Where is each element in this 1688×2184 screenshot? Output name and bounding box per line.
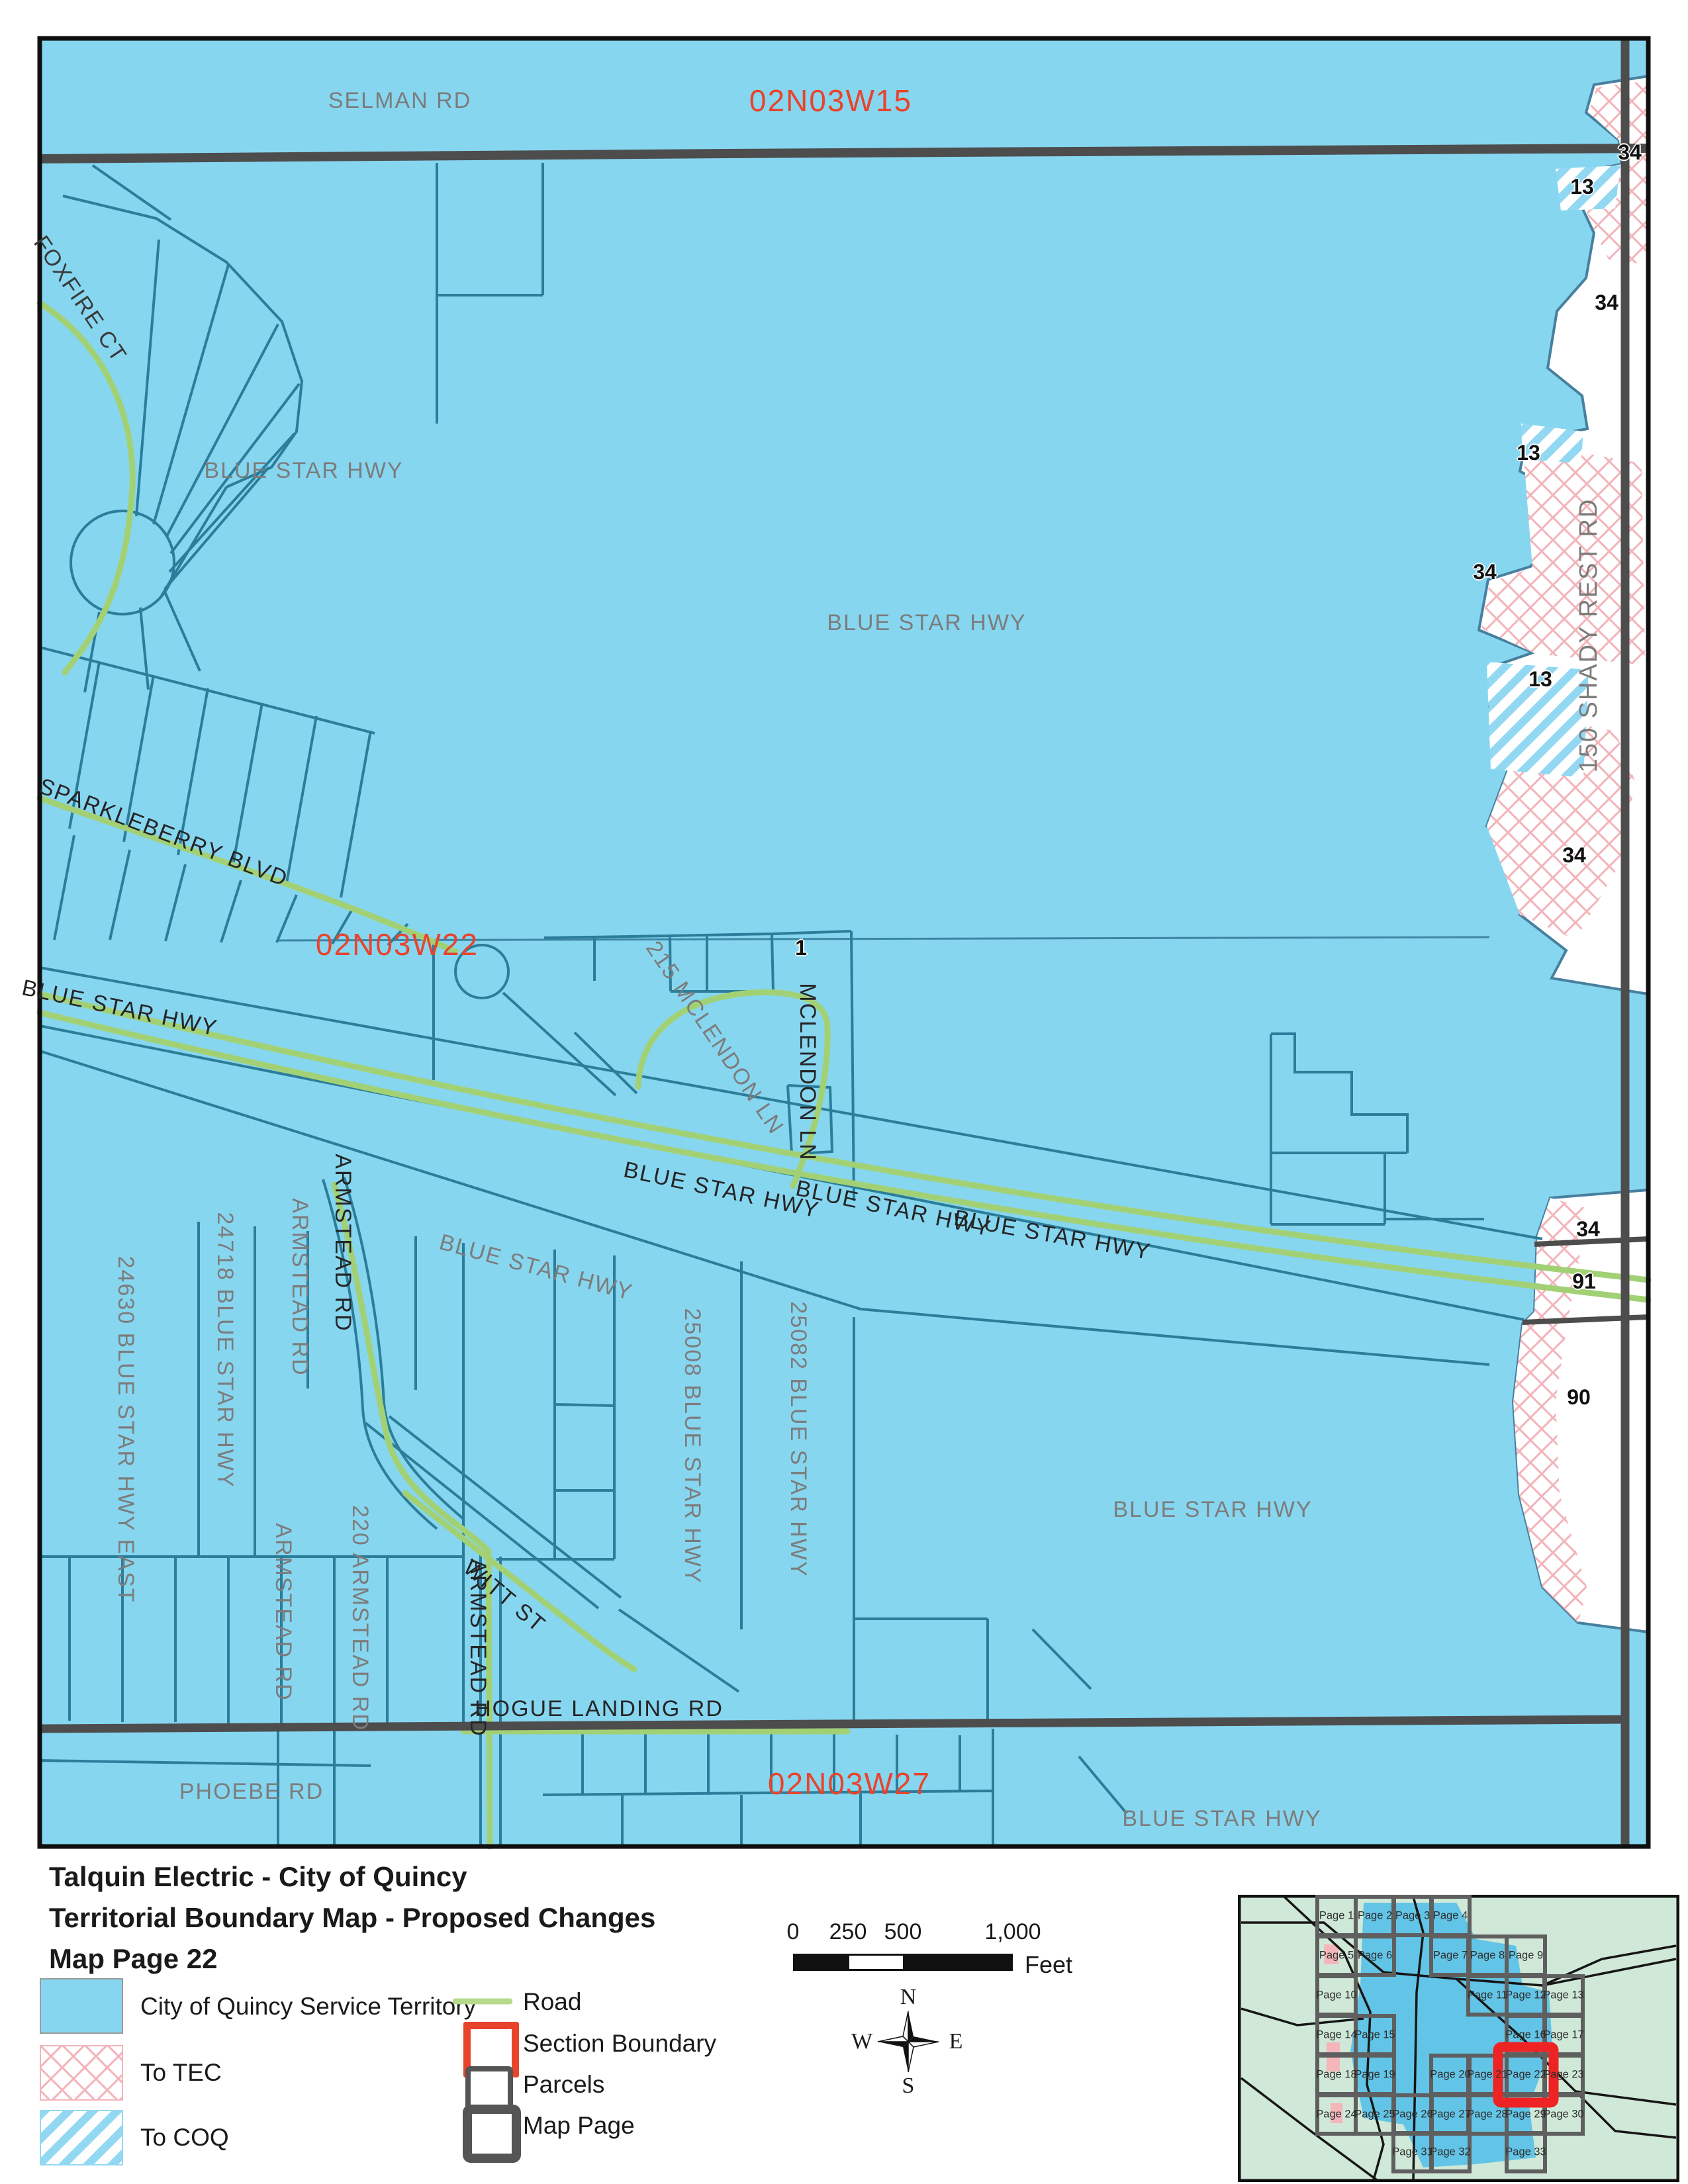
compass-e-label: E <box>949 2029 963 2054</box>
road-label-150-shady-rest-rd: 150 SHADY REST RD <box>1576 498 1601 773</box>
inset-page-label: Page 9 <box>1509 1950 1543 1962</box>
scale-bar <box>793 1954 1013 1971</box>
parcel-number: 1 <box>795 937 807 958</box>
inset-page-label: Page 18 <box>1316 2069 1356 2081</box>
inset-page-label: Page 23 <box>1543 2069 1583 2081</box>
inset-page-label: Page 14 <box>1316 2029 1356 2042</box>
map-title-line1: Talquin Electric - City of Quincy <box>49 1861 655 1893</box>
scale-bar-segment <box>795 1956 849 1969</box>
inset-page-label: Page 30 <box>1543 2109 1583 2121</box>
legend-swatch-tec <box>40 2045 123 2101</box>
legend-label-section-boundary: Section Boundary <box>523 2030 716 2058</box>
parcel-number: 34 <box>1562 844 1586 866</box>
legend-label-tec: To TEC <box>140 2059 222 2087</box>
inset-page-label: Page 28 <box>1467 2109 1507 2121</box>
legend-swatch-territory <box>40 1978 123 2034</box>
compass-n-label: N <box>900 1985 917 2010</box>
inset-page-label: Page 5 <box>1319 1950 1354 1962</box>
legend-label-road: Road <box>523 1988 581 2016</box>
addr-label-25082: 25082 BLUE STAR HWY <box>787 1301 810 1577</box>
parcel-number: 91 <box>1572 1271 1596 1292</box>
legend-label-coq: To COQ <box>140 2124 229 2152</box>
map-title-line2: Territorial Boundary Map - Proposed Chan… <box>49 1902 655 1934</box>
road-label-armstead-gray-1: ARMSTEAD RD <box>289 1198 311 1376</box>
legend-label-parcels: Parcels <box>523 2071 604 2099</box>
scale-bar-segment <box>903 1956 1011 1969</box>
parcel-number: 34 <box>1618 142 1642 163</box>
compass-w-label: W <box>851 2029 872 2054</box>
map-page: SELMAN RD 02N03W15 FOXFIRE CT BLUE STAR … <box>0 0 1688 2184</box>
scale-tick-0: 0 <box>787 1919 800 1945</box>
road-label-armstead-black-top: ARMSTEAD RD <box>332 1154 354 1332</box>
parcel-number: 34 <box>1576 1218 1600 1240</box>
map-title-line3: Map Page 22 <box>49 1943 655 1975</box>
road-label-hogue-landing-rd: HOGUE LANDING RD <box>475 1698 724 1720</box>
scale-unit-label: Feet <box>1025 1951 1072 1979</box>
road-label-phoebe-rd: PHOEBE RD <box>179 1780 324 1803</box>
addr-label-220-armstead: 220 ARMSTEAD RD <box>349 1505 371 1731</box>
inset-page-label: Page 11 <box>1468 1989 1507 2002</box>
inset-page-label: Page 25 <box>1354 2109 1395 2121</box>
section-label-02n03w15: 02N03W15 <box>749 85 912 116</box>
inset-page-label: Page 3 <box>1395 1910 1430 1923</box>
inset-page-label: Page 27 <box>1430 2109 1470 2121</box>
legend-swatch-coq <box>40 2110 123 2165</box>
road-label-selman-rd: SELMAN RD <box>328 89 471 112</box>
legend-label-map-page: Map Page <box>523 2112 635 2140</box>
inset-page-label: Page 6 <box>1358 1950 1392 1962</box>
title-block: Talquin Electric - City of Quincy Territ… <box>49 1861 655 1984</box>
compass-s-label: S <box>902 2073 915 2099</box>
inset-page-label: Page 20 <box>1430 2069 1470 2081</box>
scale-tick-250: 250 <box>829 1919 867 1945</box>
inset-page-label: Page 22 <box>1505 2069 1546 2081</box>
road-label-armstead-gray-2: ARMSTEAD RD <box>272 1523 295 1701</box>
inset-page-label: Page 1 <box>1319 1910 1354 1923</box>
inset-page-label: Page 4 <box>1433 1910 1468 1923</box>
inset-page-label: Page 7 <box>1433 1950 1468 1962</box>
scale-tick-1000: 1,000 <box>984 1919 1041 1945</box>
inset-page-label: Page 19 <box>1354 2069 1395 2081</box>
inset-page-label: Page 12 <box>1505 1989 1546 2002</box>
scale-tick-500: 500 <box>884 1919 922 1945</box>
compass-rose-icon <box>875 2009 941 2075</box>
addr-label-25008: 25008 BLUE STAR HWY <box>681 1308 704 1584</box>
inset-page-label: Page 15 <box>1354 2029 1395 2042</box>
parcel-number: 34 <box>1473 561 1497 582</box>
legend-road-icon <box>453 1995 512 2008</box>
parcel-number: 90 <box>1567 1387 1591 1408</box>
inset-page-label: Page 8 <box>1470 1950 1505 1962</box>
parcel-number: 13 <box>1517 442 1540 463</box>
section-label-02n03w27: 02N03W27 <box>768 1768 931 1799</box>
map-canvas <box>0 0 1688 2184</box>
inset-page-label: Page 2 <box>1358 1910 1392 1923</box>
parcel-number: 13 <box>1570 176 1594 197</box>
road-label-blue-star-hwy-1: BLUE STAR HWY <box>204 459 403 482</box>
inset-page-label: Page 21 <box>1467 2069 1507 2081</box>
addr-label-24630: 24630 BLUE STAR HWY EAST <box>115 1256 137 1604</box>
inset-map-canvas <box>1238 1895 1679 2182</box>
parcel-number: 34 <box>1595 292 1618 313</box>
inset-page-label: Page 13 <box>1543 1989 1583 2002</box>
inset-page-label: Page 31 <box>1392 2146 1432 2159</box>
inset-page-label: Page 10 <box>1316 1989 1356 2002</box>
inset-page-label: Page 26 <box>1392 2109 1432 2121</box>
legend-label-territory: City of Quincy Service Territory <box>140 1993 476 2021</box>
legend-map-page-icon <box>463 2105 521 2163</box>
addr-label-24718: 24718 BLUE STAR HWY <box>214 1212 236 1488</box>
inset-page-label: Page 29 <box>1505 2109 1546 2121</box>
parcel-number: 13 <box>1528 668 1552 690</box>
inset-page-label: Page 17 <box>1543 2029 1583 2042</box>
inset-key-map: Page 1 Page 2 Page 3 Page 4 Page 5 Page … <box>1238 1895 1679 2182</box>
section-label-02n03w22: 02N03W22 <box>316 929 479 960</box>
road-label-mclendon-ln: MCLENDON LN <box>796 983 819 1161</box>
road-label-blue-star-hwy-3: BLUE STAR HWY <box>1113 1498 1312 1521</box>
inset-page-label: Page 33 <box>1505 2146 1546 2159</box>
inset-page-label: Page 24 <box>1316 2109 1356 2121</box>
inset-page-label: Page 16 <box>1505 2029 1546 2042</box>
road-label-blue-star-hwy-4: BLUE STAR HWY <box>1122 1807 1321 1830</box>
road-label-blue-star-hwy-2: BLUE STAR HWY <box>827 612 1026 634</box>
inset-page-label: Page 32 <box>1430 2146 1470 2159</box>
